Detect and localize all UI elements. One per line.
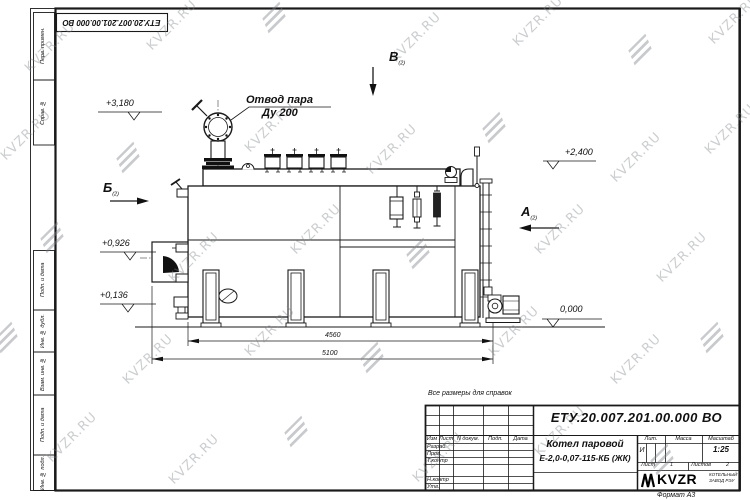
view-label-v: В(2) [389, 50, 405, 67]
frame-column-sprav-no: Справ. № [33, 80, 54, 145]
product-name-line1: Котел паровой [533, 440, 637, 451]
spring-logo-icon [640, 472, 655, 489]
mass-label: Масса [665, 437, 702, 443]
top-designation-stamp: ЕТУ.20.007.201.00.000 ВО [56, 13, 167, 31]
view-label-a: А(2) [521, 205, 537, 222]
steam-outlet-label-line1: Отвод пара [246, 95, 313, 107]
sheet-label: Лист [641, 463, 655, 469]
lit-value: И [637, 447, 647, 454]
rev-col-data: Дата [508, 437, 533, 443]
boiler-drawing-canvas [0, 0, 750, 500]
sheets-value: 2 [726, 463, 729, 469]
frame-column-inv-podl: Инв. № подл. [33, 455, 54, 491]
rev-col-podp: Подп. [483, 437, 508, 443]
company-tagline-2: ЗАВОД РЭУ [709, 479, 734, 484]
elevation-2400: +2,400 [565, 148, 593, 157]
scale-value: 1:25 [702, 446, 740, 454]
sig-razrab: Разраб. [427, 445, 447, 451]
frame-column-podp-data-2: Подп. и дата [33, 395, 54, 455]
reference-note: Все размеры для справок [428, 390, 512, 397]
scale-label: Масштаб [702, 437, 740, 443]
dimension-5100: 5100 [322, 350, 338, 357]
sig-prov: Пров. [427, 452, 442, 458]
steam-valve [192, 100, 234, 169]
company-tagline-1: КОТЕЛЬНЫЙ [709, 473, 737, 478]
format-note: Формат А3 [657, 492, 695, 499]
sig-tkontr: Т.контр [427, 459, 448, 465]
sheets-label: Листов [691, 463, 711, 469]
drawing-sheet: KVZR.RUKVZR.RUKVZR.RUKVZR.RUKVZR.RUKVZR.… [0, 0, 750, 500]
frame-column-vzam-inv: Взам. инв. № [33, 352, 54, 395]
dimension-4560: 4560 [325, 332, 341, 339]
elevation-0136: +0,136 [100, 291, 128, 300]
lit-label: Лит. [637, 437, 665, 443]
frame-column-podp-data-1: Подп. и дата [33, 250, 54, 310]
elevation-0000: 0,000 [560, 305, 583, 314]
elevation-0926: +0,926 [102, 239, 130, 248]
company-logo-text: KVZR [657, 471, 697, 487]
elevation-3180: +3,180 [106, 99, 134, 108]
view-label-b: Б(2) [103, 181, 119, 198]
sig-nkontr: Н.контр [427, 478, 449, 484]
product-name-line2: Е-2,0-0,07-115-КБ (ЖК) [533, 454, 637, 463]
rev-col-list: Лист [439, 437, 453, 443]
frame-column-inv-dubl: Инв. № дубл. [33, 310, 54, 352]
title-designation: ЕТУ.20.007.201.00.000 ВО [533, 411, 740, 425]
sig-utv: Утв. [427, 485, 440, 491]
rev-col-doc: N докум. [453, 437, 483, 443]
steam-outlet-label-line2: Ду 200 [262, 108, 298, 120]
frame-column-perv-primen: Перв. примен. [33, 12, 54, 80]
sheet-value: 1 [670, 463, 673, 469]
rev-col-izm: Изм [425, 437, 439, 443]
